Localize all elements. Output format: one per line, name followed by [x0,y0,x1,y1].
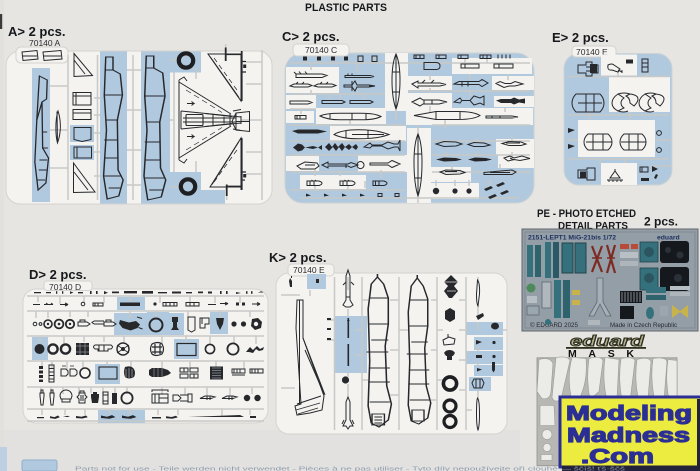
svg-text:A> 2 pcs.: A> 2 pcs. [8,24,65,39]
svg-text:70140 D: 70140 D [49,282,81,292]
svg-text:eduard: eduard [657,235,680,242]
svg-text:PE - PHOTO ETCHED: PE - PHOTO ETCHED [537,208,636,220]
svg-text:E> 2 pcs.: E> 2 pcs. [552,30,609,45]
svg-text:Made in Czech Republic: Made in Czech Republic [610,322,677,329]
svg-text:.Com: .Com [581,446,654,468]
svg-text:C> 2 pcs.: C> 2 pcs. [282,29,339,44]
svg-text:2 pcs.: 2 pcs. [644,215,678,229]
svg-text:Parts not for use - Teile we: Parts not for use - Teile werden nicht v… [75,467,625,471]
svg-text:70140 C: 70140 C [305,45,337,55]
svg-text:PLASTIC PARTS: PLASTIC PARTS [305,2,387,14]
svg-text:2151-LEPT1 MiG-21bis 1/72: 2151-LEPT1 MiG-21bis 1/72 [528,235,616,242]
svg-text:Modeling: Modeling [566,403,692,425]
svg-text:D> 2 pcs.: D> 2 pcs. [29,267,86,282]
svg-text:© EDUARD 2025: © EDUARD 2025 [530,322,578,329]
svg-text:70140 A: 70140 A [29,38,61,48]
svg-text:70140 E: 70140 E [293,265,325,275]
svg-text:K> 2 pcs.: K> 2 pcs. [269,250,326,265]
svg-text:Madness: Madness [567,425,690,447]
